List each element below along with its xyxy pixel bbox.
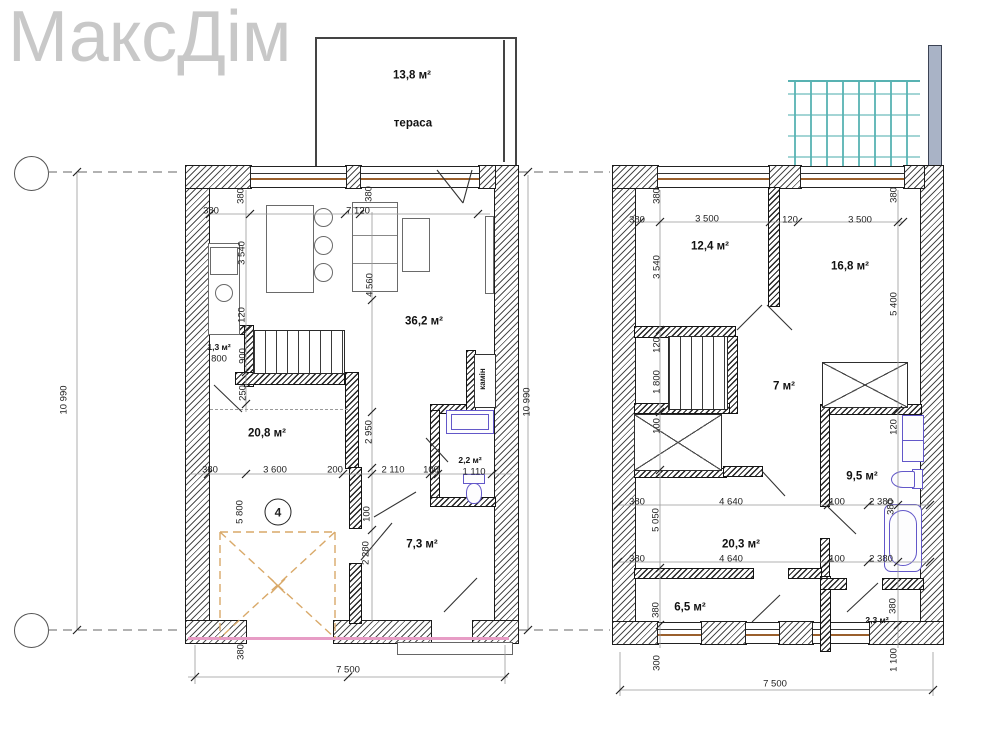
- room-label: 13,8 м²: [393, 70, 431, 82]
- dim-label: 380: [364, 186, 374, 202]
- dim-label: 2 110: [381, 465, 404, 475]
- room-label: тераса: [394, 118, 432, 130]
- terrace-inner-line: [503, 40, 505, 162]
- terrace-outline: [315, 37, 517, 169]
- wall-1f-bottom-b: [333, 620, 432, 644]
- dim-label: 2 280: [361, 541, 371, 565]
- entrance-porch: [397, 642, 513, 655]
- dim-label: 2 380: [869, 554, 893, 564]
- wall-2f-top-c: [903, 165, 925, 189]
- partition-garage-hall-a: [349, 467, 362, 529]
- dim-label: 380: [888, 598, 898, 614]
- dim-label: 200: [327, 465, 343, 475]
- dim-label: 250: [238, 385, 248, 401]
- dim-label: 380: [629, 215, 645, 225]
- room-label: 9,5 м²: [846, 471, 878, 483]
- partition-storage-top-a: [820, 578, 847, 590]
- partition-garage-hall-b: [349, 563, 362, 624]
- kitchen-stove: [210, 247, 238, 275]
- tv-cabinet: [485, 216, 494, 294]
- partition-bath2-left-a: [820, 404, 830, 507]
- room-label: 7 м²: [773, 381, 795, 393]
- stool-1: [314, 208, 333, 227]
- partition-balcony-a: [634, 568, 754, 579]
- dim-label: 3 500: [848, 215, 872, 225]
- dim-label: 800: [211, 354, 227, 364]
- dim-label: 380: [652, 188, 662, 204]
- dim-label: 100: [652, 418, 662, 434]
- dim-label: 3 500: [695, 214, 719, 224]
- dim-label: 380: [629, 554, 645, 564]
- dim-label: 4 640: [719, 497, 743, 507]
- dim-label: 380: [202, 465, 218, 475]
- stairs-1f: [253, 330, 345, 374]
- wall-2f-top-b: [768, 165, 802, 189]
- dim-label: 100: [423, 465, 439, 475]
- stool-3: [314, 263, 333, 282]
- partition-bedrooms: [768, 187, 780, 307]
- partition-bath-left: [430, 410, 440, 507]
- room-label: 6,5 м²: [674, 602, 706, 614]
- dim-label: 1 110: [462, 467, 485, 477]
- window-2f-bottom-b: [745, 622, 780, 644]
- dim-label: 100: [829, 497, 845, 507]
- dim-label: 1 100: [889, 648, 899, 672]
- dim-label: 4 640: [719, 554, 743, 564]
- kitchen-island: [266, 205, 314, 293]
- floor-plan-canvas: МаксДім: [0, 0, 1000, 750]
- window-2f-bottom-a: [657, 622, 702, 644]
- dim-label: 100: [829, 554, 845, 564]
- dim-label: 380: [629, 497, 645, 507]
- washing-machine-inner: [451, 414, 489, 430]
- company-logo: МаксДім: [8, 0, 291, 78]
- dim-label: 5 400: [889, 292, 899, 316]
- room-label: 36,2 м²: [405, 316, 443, 328]
- partition-hall-room: [723, 466, 763, 477]
- wall-1f-top-c: [478, 165, 496, 189]
- wall-1f-bottom-a: [185, 620, 247, 644]
- washing-machine: [446, 410, 494, 434]
- toilet-2f-bowl: [891, 471, 915, 488]
- dim-label: 3 540: [652, 255, 662, 279]
- dim-label: 380: [236, 644, 246, 660]
- partition-storage-top-b: [882, 578, 924, 590]
- dim-label: 7 120: [346, 206, 370, 216]
- room-label: 7,3 м²: [406, 539, 438, 551]
- dim-label: 7 500: [336, 665, 360, 675]
- fireplace-label: камін: [479, 368, 487, 389]
- dim-label: 7 500: [763, 679, 787, 689]
- partition-hall-upper: [345, 372, 359, 469]
- dim-label: 120: [782, 215, 798, 225]
- dim-label: 2 950: [364, 420, 374, 444]
- coffee-table: [402, 218, 430, 272]
- pink-threshold-line: [188, 637, 509, 640]
- room-label: 20,8 м²: [248, 428, 286, 440]
- toilet-1f-bowl: [466, 483, 482, 504]
- room-label: 20,3 м²: [722, 539, 760, 551]
- room-label: 2,2 м²: [458, 456, 481, 465]
- wall-2f-right: [920, 165, 944, 645]
- dim-label: 120: [652, 337, 662, 353]
- partition-balcony-b: [788, 568, 822, 579]
- axis-circle-top: [14, 156, 49, 191]
- wall-2f-bottom-b: [700, 621, 747, 645]
- wall-2f-bottom-a: [612, 621, 659, 645]
- dim-label: 1 800: [652, 370, 662, 394]
- wall-2f-top-a: [612, 165, 659, 189]
- dim-label: 4 560: [365, 273, 375, 297]
- wall-1f-bottom-c: [472, 620, 519, 644]
- dim-label: 5 800: [235, 500, 245, 524]
- window-1f-top-a: [250, 166, 347, 188]
- dim-label: 380: [236, 188, 246, 204]
- room-label: 16,8 м²: [831, 261, 869, 273]
- kitchen-sink: [215, 284, 233, 302]
- dim-label: 100: [362, 506, 372, 522]
- window-2f-top-b: [800, 166, 905, 188]
- room-label: 12,4 м²: [691, 241, 729, 253]
- dim-label: 3 600: [263, 465, 287, 475]
- dim-label: 120: [237, 307, 247, 323]
- parking-spot-marker: 4: [265, 499, 292, 526]
- wall-1f-right: [494, 165, 519, 644]
- dim-label: 3 540: [237, 241, 247, 265]
- balcony-balustrade: [788, 80, 920, 167]
- room-label: 1,3 м²: [207, 343, 230, 352]
- bathtub-inner: [889, 510, 917, 566]
- dim-label: 380: [203, 206, 219, 216]
- bath-cabinet: [902, 415, 924, 462]
- wall-1f-left: [185, 165, 210, 644]
- wardrobe-xbox: [822, 362, 908, 408]
- window-1f-top-b: [360, 166, 480, 188]
- closet-xbox: [634, 414, 722, 471]
- partition-bath-bottom: [430, 497, 496, 507]
- chimney-bar: [928, 45, 942, 167]
- axis-circle-bottom: [14, 613, 49, 648]
- wall-2f-bottom-c: [778, 621, 814, 645]
- stool-2: [314, 236, 333, 255]
- room-boundary-dashed: [210, 409, 348, 410]
- stairs-2f: [668, 336, 728, 410]
- dim-label: 120: [889, 419, 899, 435]
- dim-label: 300: [652, 655, 662, 671]
- dim-label: 10 990: [522, 387, 532, 416]
- dim-label: 5 050: [651, 508, 661, 532]
- dim-label: 380: [651, 602, 661, 618]
- dim-label: 380: [889, 187, 899, 203]
- room-label: 2,3 м²: [865, 616, 888, 625]
- window-2f-top-a: [657, 166, 770, 188]
- dim-label: 380: [886, 499, 896, 515]
- dim-label: 900: [238, 348, 248, 364]
- dim-label: 10 990: [59, 385, 69, 414]
- wall-1f-top-a: [185, 165, 252, 189]
- wall-2f-left: [612, 165, 636, 645]
